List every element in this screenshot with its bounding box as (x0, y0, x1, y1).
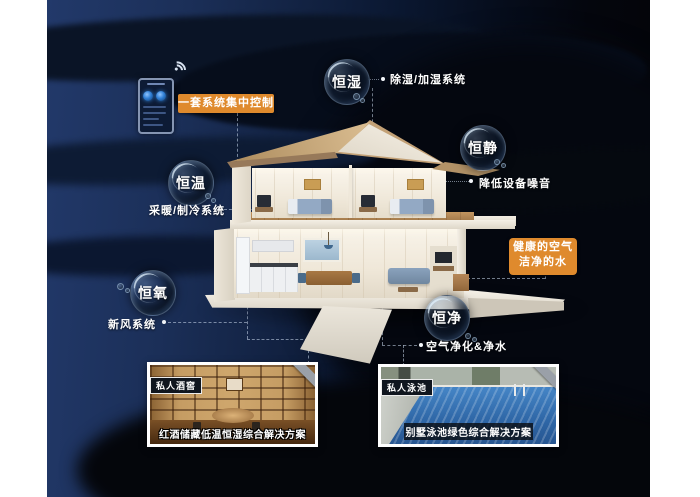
mini-bubble (205, 193, 211, 199)
label-temperature-system: 采暖/制冷系统 (149, 202, 225, 218)
connector-poolphoto-v (403, 345, 404, 366)
mini-bubble (501, 163, 506, 168)
pool-ladder-image (514, 384, 525, 396)
device-title-bar (147, 83, 165, 85)
label-humidity-system: 除湿/加湿系统 (390, 71, 466, 87)
connector-healthy-h (462, 278, 545, 279)
pool-photo: 私人泳池 别墅泳池绿色综合解决方案 (378, 364, 559, 447)
healthy-line1: 健康的空气 (509, 240, 577, 255)
device-row (143, 112, 166, 114)
bullet-oxygen (162, 320, 166, 324)
connector-winephoto-h (247, 339, 308, 340)
wave-streak (47, 233, 317, 279)
wine-table-image (212, 408, 254, 423)
mini-bubble (494, 159, 500, 165)
healthy-line2: 洁净的水 (509, 255, 577, 270)
device-knob (156, 91, 166, 101)
wine-photo-caption: 红酒储藏低温恒湿综合解决方案 (150, 426, 315, 441)
bullet-quiet (469, 179, 473, 183)
bubble-oxygen: 恒氧 (130, 270, 176, 316)
mini-bubble (353, 93, 360, 100)
mini-bubble (125, 288, 130, 293)
connector-winephoto-v (308, 339, 309, 364)
connector-oxygen-h (168, 322, 247, 323)
label-quiet-system: 降低设备噪音 (479, 175, 551, 191)
wine-photo-badge: 私人酒窖 (150, 377, 202, 394)
wine-wall-frame (226, 378, 243, 391)
wine-cellar-photo: 私人酒窖 红酒储藏低温恒湿综合解决方案 (147, 362, 318, 447)
healthy-callout: 健康的空气 洁净的水 (509, 238, 577, 275)
label-oxygen-system: 新风系统 (108, 316, 156, 332)
bullet-humidity (381, 77, 385, 81)
connector-quiet (437, 181, 469, 182)
connector-clean-v (382, 273, 383, 345)
bullet-clean (419, 343, 423, 347)
device-row (143, 124, 163, 126)
mini-bubble (360, 98, 365, 103)
infographic-page: 一套系统集中控制 健康的空气 洁净的水 恒湿 恒静 恒温 恒氧 恒净 除湿/加湿… (0, 0, 700, 497)
bubble-clean: 恒净 (424, 295, 470, 341)
label-clean-system: 空气净化&净水 (426, 338, 507, 354)
control-callout: 一套系统集中控制 (178, 94, 274, 113)
device-knob (143, 91, 153, 101)
device-row (143, 106, 166, 108)
connector-oxygen-v (247, 262, 248, 339)
pool-photo-badge: 私人泳池 (381, 379, 433, 396)
connector-humidity (372, 88, 373, 138)
mini-bubble (117, 283, 124, 290)
device-row (143, 118, 159, 120)
connector-clean-h (382, 345, 417, 346)
connector-temperature (224, 209, 286, 210)
control-panel-device (138, 78, 174, 134)
bubble-temperature: 恒温 (168, 160, 214, 206)
connector-control (237, 113, 238, 213)
pool-photo-caption: 别墅泳池绿色综合解决方案 (404, 423, 534, 440)
